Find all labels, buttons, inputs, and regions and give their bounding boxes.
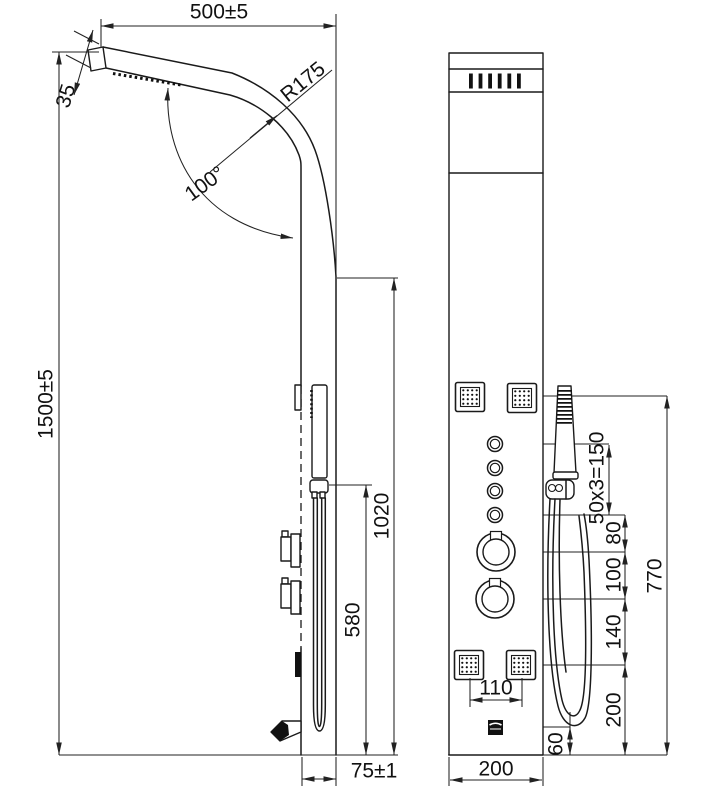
dim-label-50x3: 50x3=150 <box>586 432 609 525</box>
dim-label-panel-depth: 75±1 <box>351 760 398 783</box>
shower-panel-drawing: 500±5 35 R175 100° 1500±5 1020 5 <box>0 0 713 800</box>
hand-shower-holder-front <box>546 480 574 499</box>
dim-label-200-vertical: 200 <box>603 692 626 727</box>
control-knob-side-1 <box>281 531 300 567</box>
diverter-button-3 <box>488 484 503 499</box>
dim-label-140: 140 <box>603 614 626 649</box>
tub-spout-front <box>488 720 503 735</box>
dim-label-overall-width: 500±5 <box>190 1 248 24</box>
control-knob-side-2 <box>281 578 300 614</box>
control-knob-front-1 <box>477 532 515 572</box>
body-jet-upper-left <box>456 383 485 412</box>
dim-label-60: 60 <box>545 732 568 755</box>
body-jet-upper-right <box>508 384 537 413</box>
diverter-button-4 <box>488 508 503 523</box>
diverter-button-1 <box>488 437 503 452</box>
body-jet-lower-left <box>455 651 484 680</box>
hand-shower-holder-side <box>310 480 328 493</box>
body-jet-lower-right <box>507 651 536 680</box>
dim-label-1020: 1020 <box>371 493 394 540</box>
upper-jet-side <box>295 385 301 410</box>
dim-label-panel-width: 200 <box>478 758 513 781</box>
control-knob-front-2 <box>476 579 514 619</box>
dim-label-80: 80 <box>603 521 626 544</box>
technical-drawing-page: 500±5 35 R175 100° 1500±5 1020 5 <box>0 0 713 800</box>
diverter-button-2 <box>488 461 503 476</box>
lower-jet-side <box>295 652 301 677</box>
dim-label-100: 100 <box>603 557 626 592</box>
dim-label-overall-height: 1500±5 <box>35 369 58 439</box>
dim-label-770: 770 <box>644 558 667 593</box>
dim-label-110: 110 <box>479 677 512 700</box>
dim-label-580: 580 <box>342 602 365 637</box>
paper-background <box>0 0 713 800</box>
